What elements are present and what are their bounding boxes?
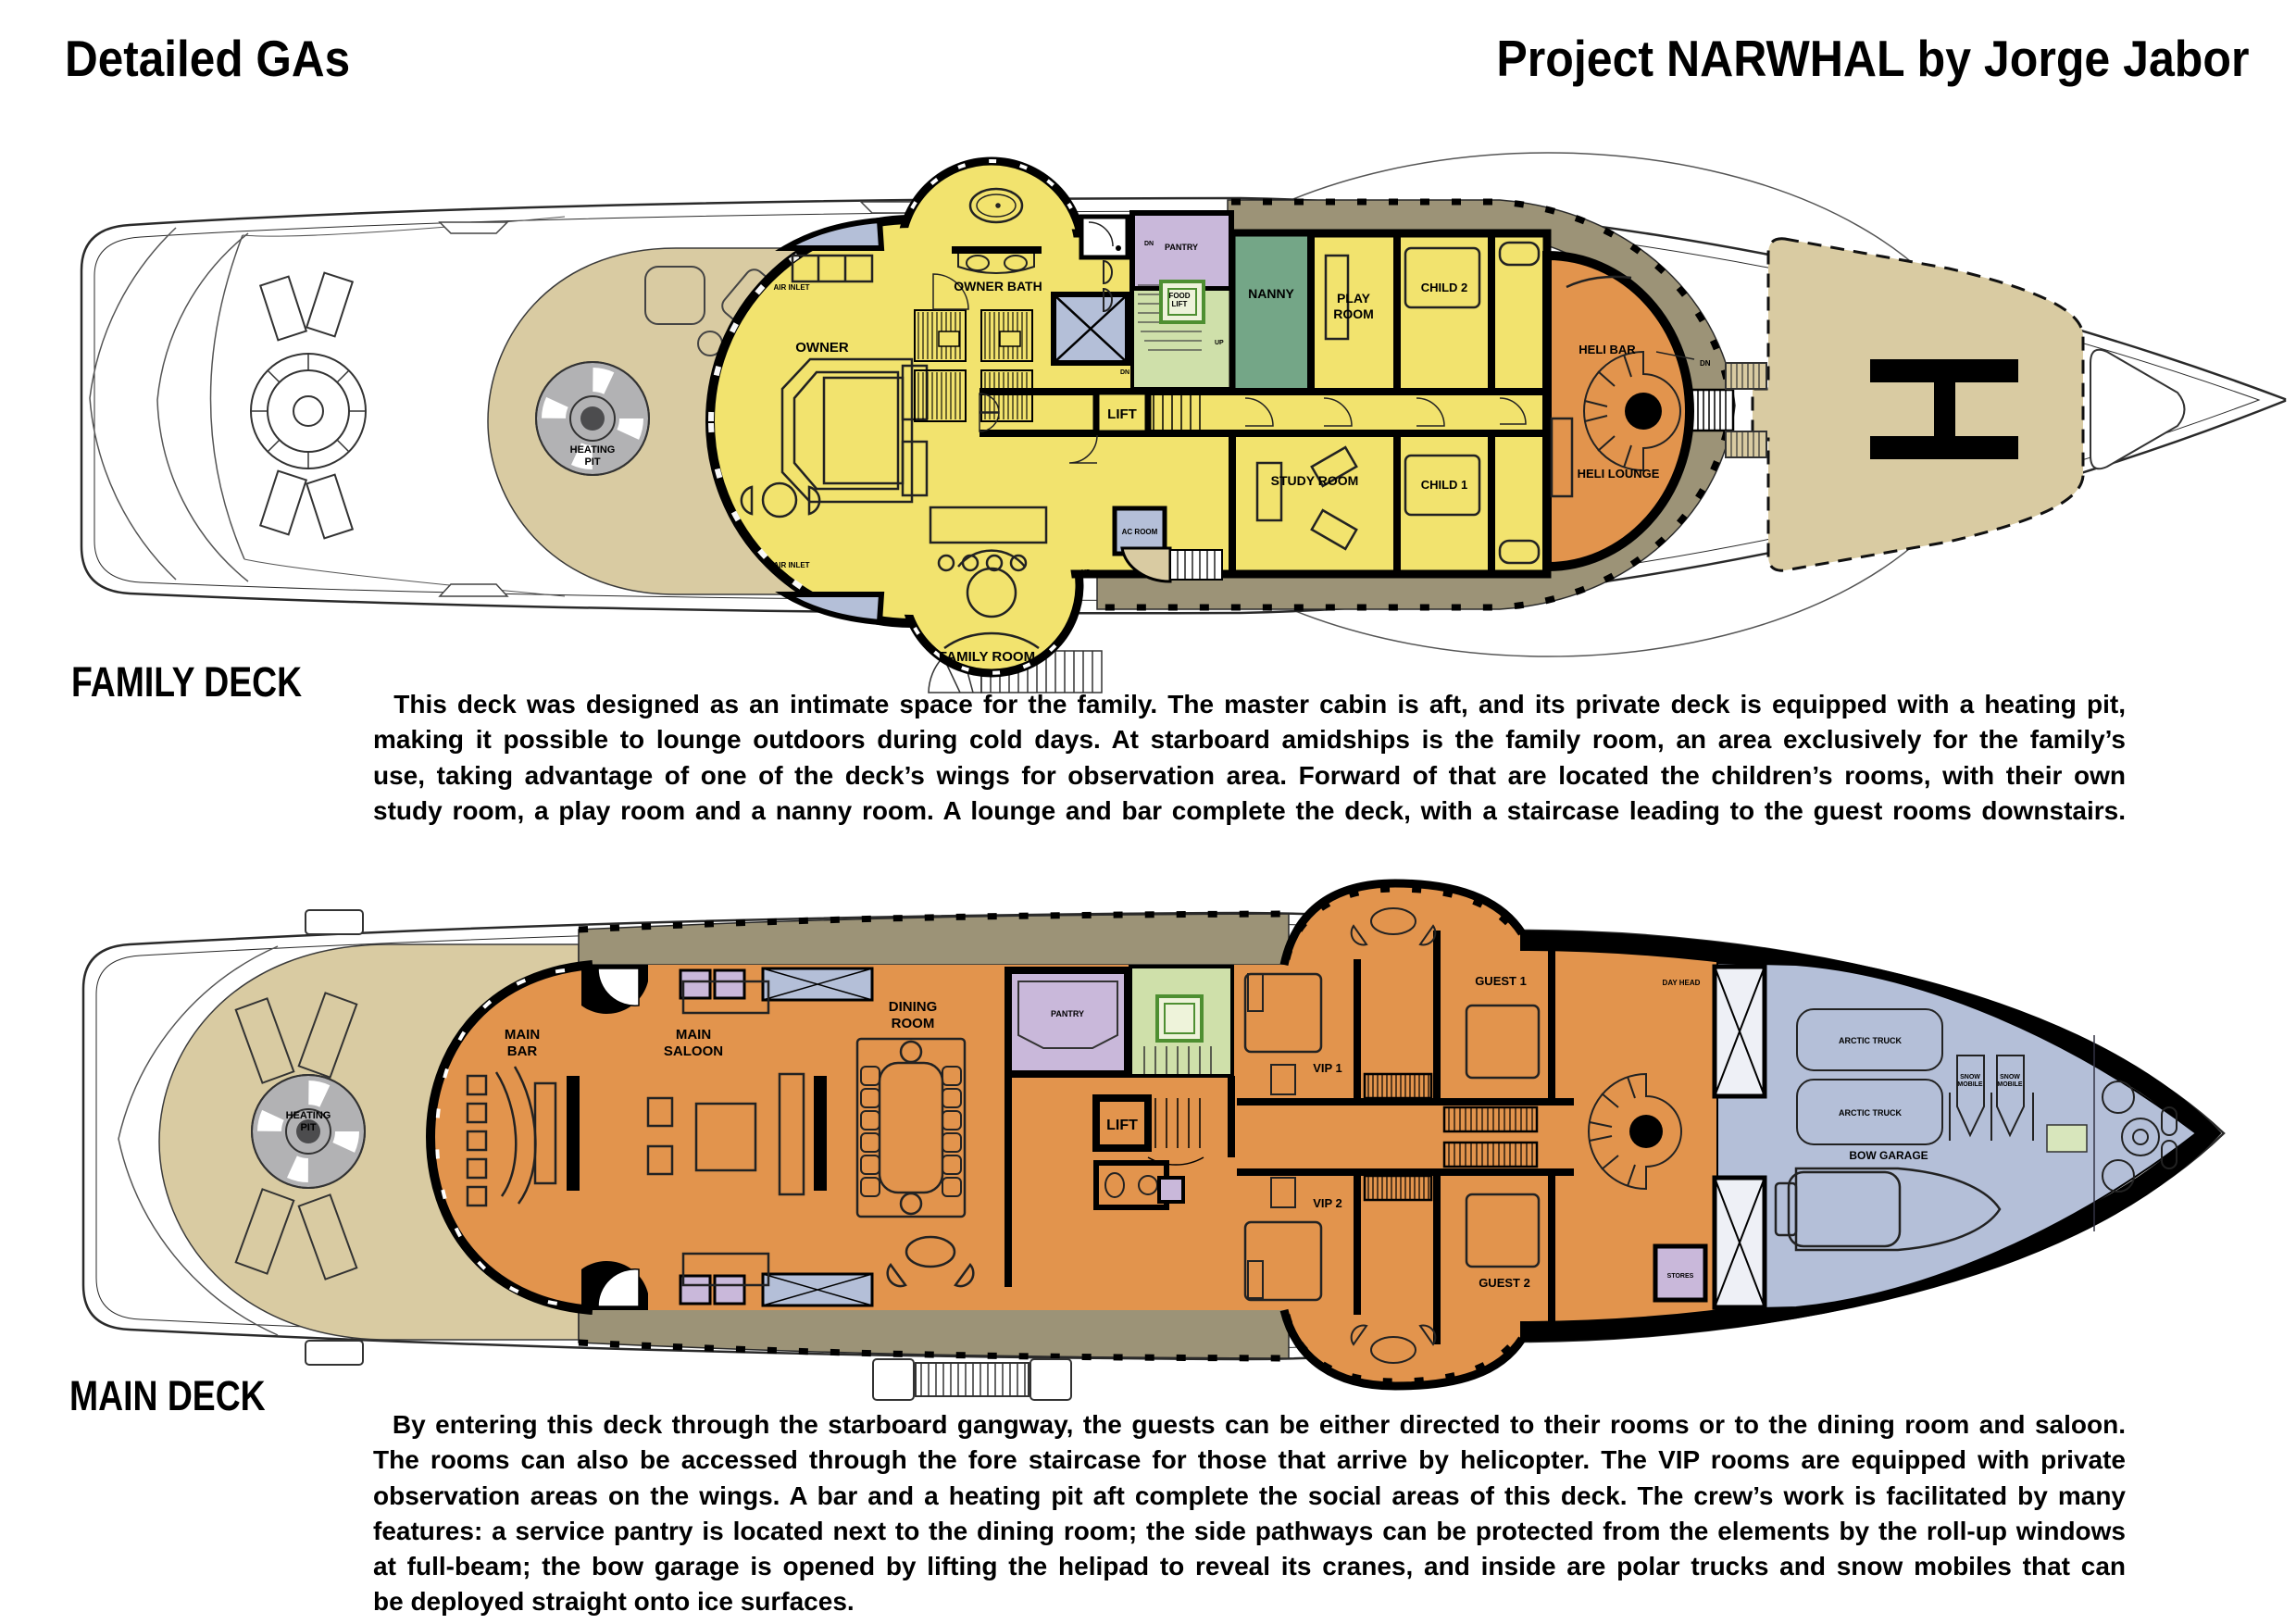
svg-text:AIR INLET: AIR INLET [773, 283, 809, 292]
svg-text:FOOD: FOOD [1168, 292, 1190, 300]
svg-text:CHILD 2: CHILD 2 [1421, 281, 1468, 294]
svg-text:DN: DN [1700, 359, 1711, 368]
svg-text:MAIN: MAIN [676, 1027, 711, 1043]
svg-text:HEATING: HEATING [570, 444, 616, 456]
svg-text:ARCTIC TRUCK: ARCTIC TRUCK [1839, 1108, 1902, 1118]
svg-text:STORES: STORES [1667, 1273, 1694, 1280]
svg-text:DINING: DINING [889, 999, 938, 1015]
svg-text:VIP 2: VIP 2 [1313, 1196, 1342, 1210]
svg-text:SALOON: SALOON [664, 1043, 723, 1059]
svg-text:UP: UP [1215, 340, 1224, 346]
svg-text:GUEST 1: GUEST 1 [1475, 974, 1527, 988]
svg-text:SNOW: SNOW [1960, 1074, 1980, 1081]
svg-text:DAY HEAD: DAY HEAD [1663, 979, 1701, 987]
svg-text:DN: DN [1120, 369, 1129, 376]
svg-text:HEATING: HEATING [286, 1110, 331, 1121]
svg-text:CHILD 1: CHILD 1 [1421, 478, 1468, 492]
svg-text:MOBILE: MOBILE [1997, 1081, 2023, 1088]
svg-text:BAR: BAR [507, 1043, 538, 1059]
svg-text:HELI LOUNGE: HELI LOUNGE [1578, 467, 1660, 481]
svg-text:ARCTIC TRUCK: ARCTIC TRUCK [1839, 1036, 1902, 1045]
svg-text:PLAY: PLAY [1337, 291, 1371, 306]
svg-text:OWNER BATH: OWNER BATH [954, 279, 1042, 294]
svg-text:SNOW: SNOW [2000, 1074, 2020, 1081]
svg-text:PANTRY: PANTRY [1051, 1009, 1084, 1018]
svg-text:LIFT: LIFT [1106, 1118, 1138, 1133]
svg-text:HELI BAR: HELI BAR [1578, 343, 1636, 356]
svg-text:ROOM: ROOM [892, 1016, 935, 1031]
svg-text:PIT: PIT [300, 1122, 316, 1133]
svg-text:GUEST 2: GUEST 2 [1479, 1276, 1530, 1290]
svg-text:MAIN: MAIN [505, 1027, 540, 1043]
svg-text:LIFT: LIFT [1107, 406, 1137, 422]
svg-text:VIP 1: VIP 1 [1313, 1061, 1342, 1075]
svg-text:AC ROOM: AC ROOM [1122, 528, 1158, 536]
svg-text:FAMILY ROOM: FAMILY ROOM [939, 649, 1035, 665]
svg-text:UP: UP [1081, 569, 1091, 576]
svg-text:PIT: PIT [584, 456, 600, 468]
svg-text:BOW GARAGE: BOW GARAGE [1849, 1149, 1928, 1162]
svg-text:AIR INLET: AIR INLET [773, 561, 809, 569]
svg-text:DN: DN [1144, 241, 1154, 247]
svg-text:LIFT: LIFT [1172, 300, 1188, 308]
svg-text:MOBILE: MOBILE [1957, 1081, 1983, 1088]
svg-text:OWNER: OWNER [795, 340, 849, 356]
svg-text:ROOM: ROOM [1333, 306, 1374, 321]
svg-text:NANNY: NANNY [1248, 286, 1294, 301]
svg-text:STUDY ROOM: STUDY ROOM [1271, 473, 1359, 488]
svg-text:PANTRY: PANTRY [1165, 243, 1198, 252]
